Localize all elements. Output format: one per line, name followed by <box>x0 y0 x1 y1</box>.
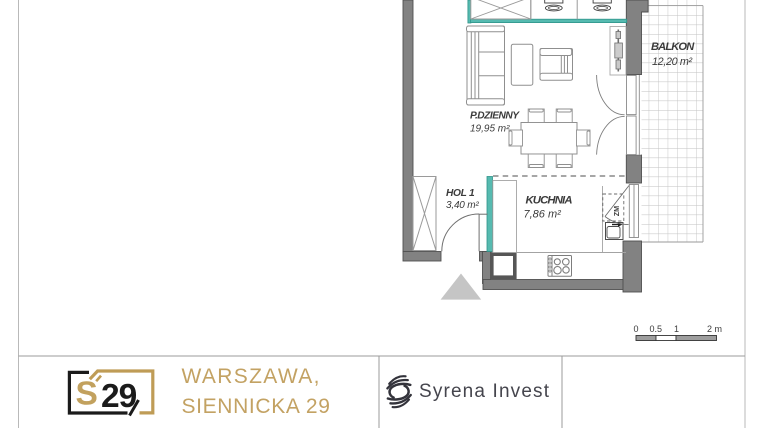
svg-text:3,40 m²: 3,40 m² <box>446 200 479 211</box>
svg-text:BALKON: BALKON <box>651 41 695 53</box>
svg-text:SIENNICKA 29: SIENNICKA 29 <box>182 395 331 418</box>
svg-text:1: 1 <box>674 324 679 334</box>
svg-text:2 m: 2 m <box>707 324 722 334</box>
svg-text:ZM: ZM <box>612 206 621 216</box>
svg-text:0: 0 <box>634 324 639 334</box>
svg-text:P.DZIENNY: P.DZIENNY <box>470 110 520 121</box>
svg-text:S: S <box>76 376 98 413</box>
svg-text:0.5: 0.5 <box>650 324 663 334</box>
svg-text:HOL 1: HOL 1 <box>446 188 475 199</box>
svg-text:12,20 m²: 12,20 m² <box>652 56 693 68</box>
svg-text:KUCHNIA: KUCHNIA <box>526 195 573 207</box>
svg-text:WARSZAWA,: WARSZAWA, <box>182 365 321 388</box>
svg-text:19,95 m²: 19,95 m² <box>470 124 510 135</box>
svg-text:7,86 m²: 7,86 m² <box>524 209 562 221</box>
svg-text:Syrena Invest: Syrena Invest <box>419 381 550 402</box>
